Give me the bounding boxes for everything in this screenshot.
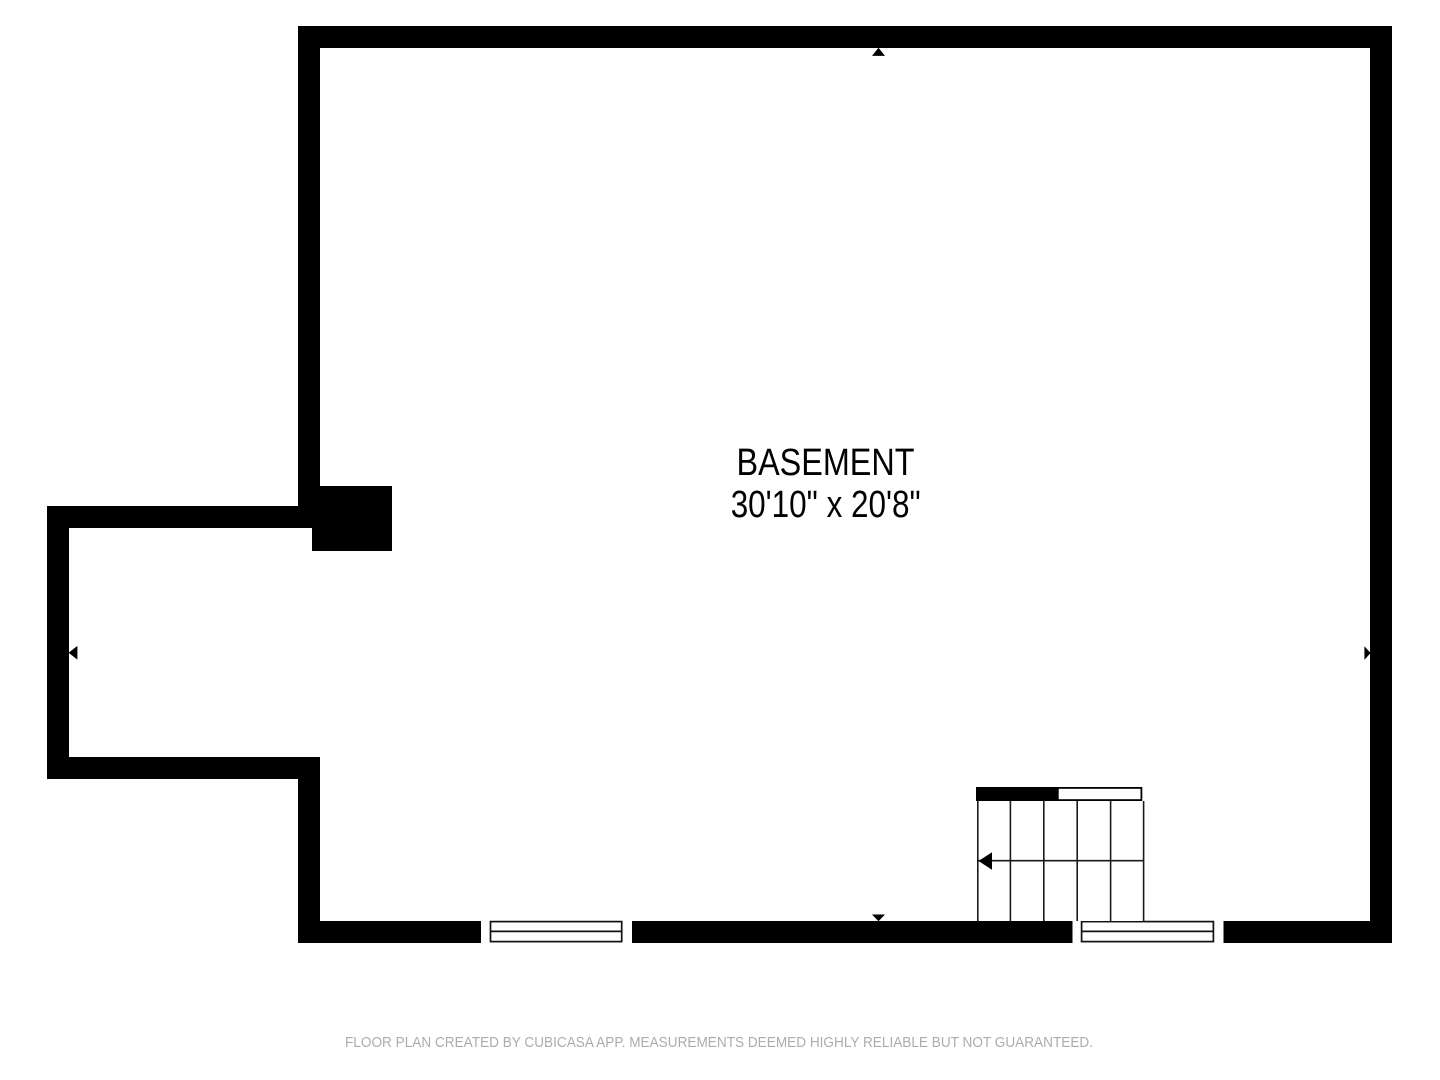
svg-text:FLOOR PLAN CREATED BY CUBICASA: FLOOR PLAN CREATED BY CUBICASA APP. MEAS…: [345, 1035, 1093, 1051]
svg-text:30'10" x 20'8": 30'10" x 20'8": [731, 483, 921, 526]
svg-text:BASEMENT: BASEMENT: [737, 441, 915, 484]
